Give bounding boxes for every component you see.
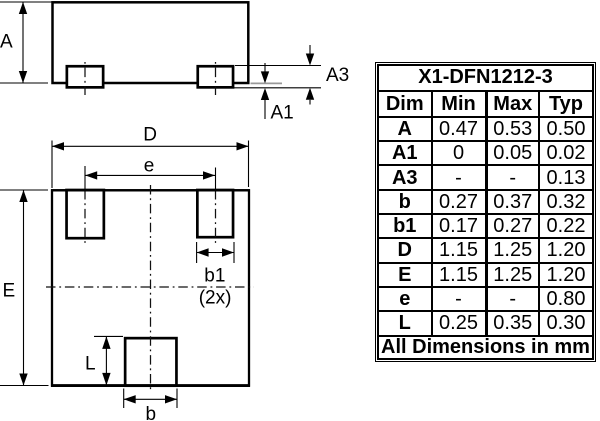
- svg-text:e: e: [144, 156, 155, 177]
- svg-text:A1: A1: [271, 103, 294, 124]
- svg-text:(2x): (2x): [199, 288, 232, 309]
- svg-text:L: L: [85, 354, 96, 375]
- svg-text:A3: A3: [326, 65, 349, 86]
- svg-text:A: A: [0, 32, 13, 53]
- svg-text:b1: b1: [204, 266, 225, 287]
- svg-text:b: b: [146, 404, 157, 421]
- svg-text:E: E: [3, 281, 16, 302]
- svg-text:D: D: [143, 125, 157, 146]
